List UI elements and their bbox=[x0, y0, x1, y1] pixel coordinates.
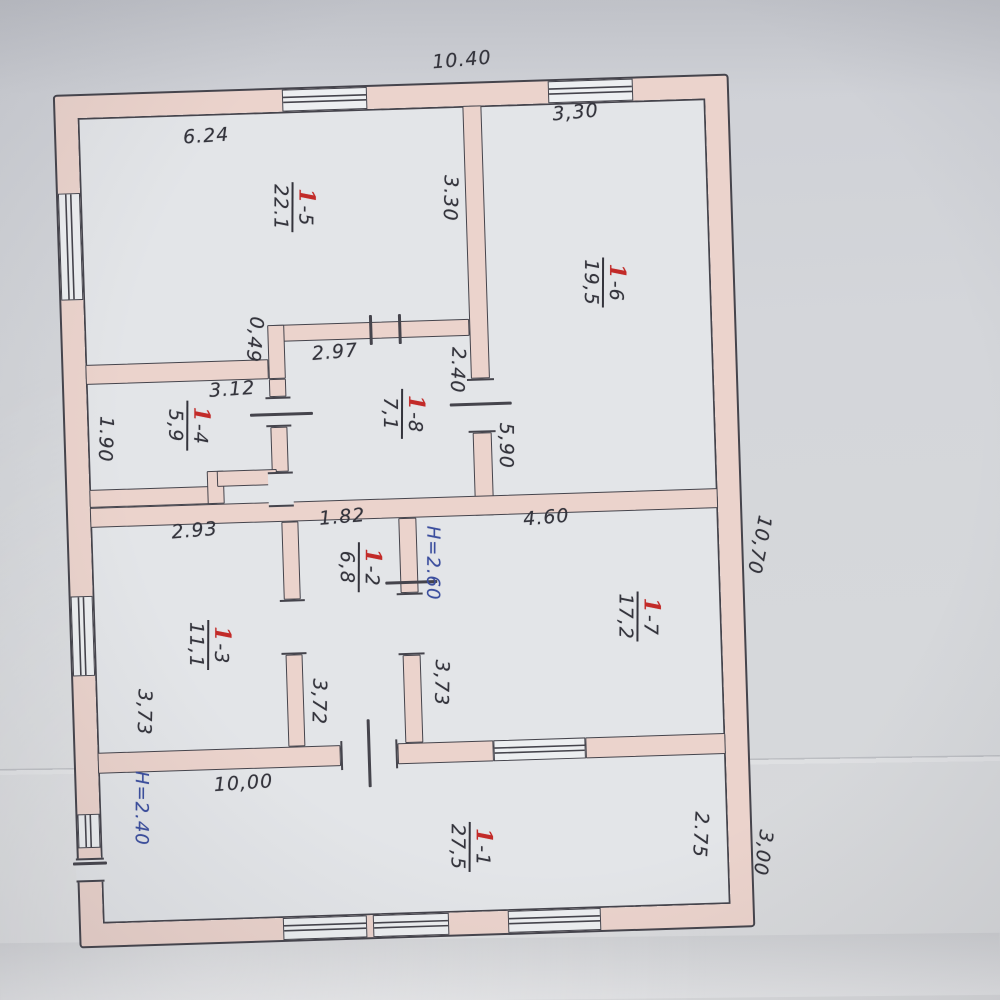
height-label-0: H=2.60 bbox=[422, 526, 443, 601]
window-symbol-left-room5 bbox=[58, 193, 83, 301]
room-number-litera: 1 bbox=[360, 548, 386, 564]
floor-plan: 10.406.243,303.300,492.973.121.902.405,9… bbox=[55, 68, 754, 951]
window-symbol-room7-room1 bbox=[493, 737, 586, 761]
height-label-1: H=2.40 bbox=[131, 771, 152, 846]
wall-room4-room8-a bbox=[269, 379, 287, 398]
room-number-litera: 1 bbox=[293, 188, 319, 204]
dim-label-6-24: 6.24 bbox=[182, 124, 230, 149]
room-area: 7,1 bbox=[379, 389, 401, 439]
room-number: 1-3 bbox=[207, 620, 233, 670]
window-symbol-bottom-3 bbox=[508, 908, 602, 933]
window-symbol-top-left bbox=[282, 87, 368, 112]
room-label-1-3: 1-311,1 bbox=[185, 620, 233, 670]
window-symbol-left-room3 bbox=[71, 596, 96, 677]
room-area: 27,5 bbox=[447, 822, 469, 872]
dim-label-2-40: 2.40 bbox=[446, 347, 470, 394]
dim-label-5-90: 5,90 bbox=[495, 423, 517, 469]
room-number-suffix: -3 bbox=[210, 643, 232, 664]
room-number-suffix: -5 bbox=[294, 206, 316, 227]
room-area: 19,5 bbox=[580, 257, 602, 307]
room-area: 5,9 bbox=[164, 401, 186, 451]
room-number-litera: 1 bbox=[188, 407, 214, 423]
room-number: 1-4 bbox=[186, 401, 212, 451]
dim-label-4-60: 4.60 bbox=[522, 505, 570, 531]
wall-room1-top-b bbox=[397, 740, 494, 764]
dim-label-2-97: 2.97 bbox=[311, 339, 359, 365]
room-number-litera: 1 bbox=[209, 626, 235, 642]
door-opening-room3-room2 bbox=[280, 599, 307, 655]
dim-label-10-70: 10,70 bbox=[743, 514, 776, 577]
dim-label-3-30: 3.30 bbox=[439, 175, 462, 222]
wall-room2-room7-b bbox=[403, 655, 424, 744]
room-number: 1-6 bbox=[602, 257, 628, 307]
dim-label-3-73: 3,73 bbox=[133, 689, 156, 736]
door-opening-room2-room7 bbox=[397, 592, 425, 655]
room-area: 11,1 bbox=[185, 620, 207, 670]
room-label-1-4: 1-45,9 bbox=[164, 401, 212, 451]
room-label-1-1: 1-127,5 bbox=[447, 822, 495, 872]
wall-room3-room2-a bbox=[281, 521, 300, 599]
room-number-suffix: -4 bbox=[189, 424, 211, 445]
wall-jog bbox=[267, 325, 286, 380]
wall-room3-room2-b bbox=[286, 654, 306, 746]
room-area: 17,2 bbox=[614, 591, 636, 641]
room-number-litera: 1 bbox=[471, 828, 497, 844]
room-number-suffix: -7 bbox=[639, 615, 661, 636]
dim-label-3-72: 3,72 bbox=[308, 678, 331, 725]
dim-label-3-73: 3,73 bbox=[430, 660, 453, 707]
dim-label-10-00: 10,00 bbox=[213, 770, 274, 796]
room-number-litera: 1 bbox=[639, 598, 665, 614]
room-label-1-8: 1-87,1 bbox=[379, 389, 427, 439]
room-number-suffix: -2 bbox=[361, 566, 383, 587]
dim-label-3-12: 3.12 bbox=[208, 377, 256, 402]
room-area: 6,8 bbox=[336, 542, 358, 592]
room-number-suffix: -6 bbox=[605, 281, 627, 302]
room-number: 1-7 bbox=[636, 592, 662, 642]
room-number: 1-1 bbox=[468, 822, 494, 872]
room-label-1-5: 1-522.1 bbox=[269, 182, 317, 232]
wall-room1-top-c bbox=[585, 733, 726, 758]
room-number: 1-8 bbox=[401, 389, 427, 439]
room-label-1-2: 1-26,8 bbox=[336, 542, 384, 592]
room-area: 22.1 bbox=[269, 182, 291, 232]
room-number-suffix: -1 bbox=[472, 845, 494, 866]
window-symbol-bottom-2 bbox=[373, 913, 450, 937]
dim-label-2-93: 2.93 bbox=[171, 518, 219, 544]
door-opening-room8-room6 bbox=[467, 378, 496, 433]
room-label-1-7: 1-717,2 bbox=[614, 591, 662, 641]
dim-label-3-00: 3,00 bbox=[749, 828, 777, 877]
door-opening-room4-lower bbox=[268, 471, 294, 507]
room-number-suffix: -8 bbox=[404, 412, 426, 433]
room-number-litera: 1 bbox=[403, 395, 429, 411]
dim-label-0-49: 0,49 bbox=[242, 316, 268, 364]
dim-label-1-90: 1.90 bbox=[94, 416, 118, 463]
room-number: 1-5 bbox=[291, 182, 317, 232]
room-number-litera: 1 bbox=[604, 263, 630, 279]
room-label-1-6: 1-619,5 bbox=[580, 257, 628, 307]
window-symbol-bottom-1 bbox=[283, 915, 368, 940]
wall-room4-room8-b bbox=[270, 427, 288, 473]
dim-label-1-82: 1.82 bbox=[318, 504, 366, 530]
photo-background: { "colors":{ "paper":"#d4d6da","interior… bbox=[0, 0, 1000, 1000]
dim-label-2-75: 2.75 bbox=[688, 811, 713, 858]
window-symbol-left-room1 bbox=[77, 814, 100, 849]
room-number: 1-2 bbox=[358, 542, 384, 592]
dim-label-3-30: 3,30 bbox=[552, 100, 600, 126]
